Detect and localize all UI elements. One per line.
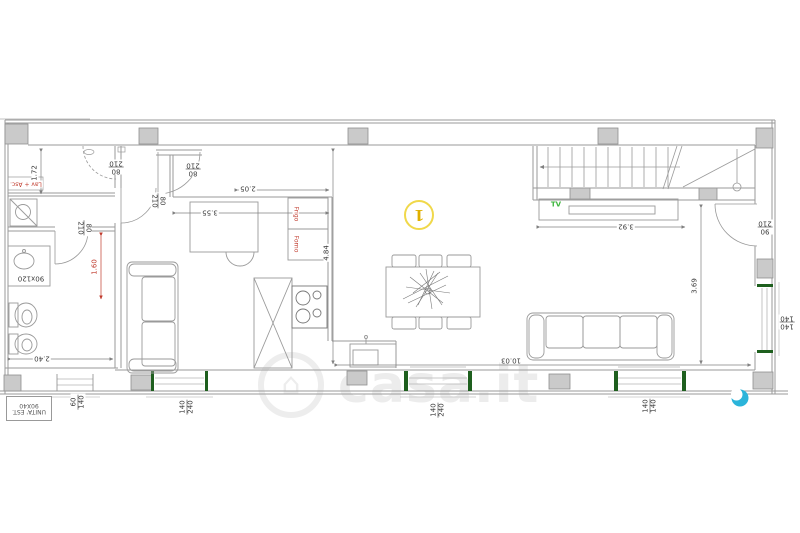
level-badge: 1 bbox=[404, 200, 434, 230]
bidet-tank bbox=[9, 303, 18, 327]
sink-unit bbox=[350, 336, 396, 368]
chair bbox=[226, 252, 254, 266]
kitchen-units bbox=[190, 198, 396, 368]
hall-door-1-size: 80210 bbox=[107, 160, 124, 175]
tv-label: TV bbox=[550, 202, 562, 209]
wc-tank bbox=[9, 334, 18, 354]
washbasin bbox=[14, 253, 34, 269]
dim-bath-detail: 1.60 bbox=[92, 258, 99, 276]
floor-plan: ⌂ casa.it bbox=[0, 0, 800, 533]
dim-bath-width: 2.40 bbox=[33, 355, 51, 362]
interior-walls bbox=[8, 146, 755, 368]
plant bbox=[403, 269, 450, 309]
kitchen-door-size: 80210 bbox=[151, 192, 166, 209]
entry-door-arc bbox=[715, 204, 757, 246]
brand-blue-dot bbox=[731, 389, 749, 407]
exterior-sill-lines bbox=[50, 282, 779, 397]
window-left-size: 140240 bbox=[180, 398, 195, 415]
dim-hall-depth: 4.84 bbox=[324, 244, 331, 262]
entry-door-size: 90210 bbox=[756, 220, 773, 235]
dim-kitchen-opening: 2.05 bbox=[239, 185, 257, 192]
oven-label: Forno bbox=[293, 235, 300, 254]
dimension-lines bbox=[11, 152, 751, 365]
bath-door-size: 80210 bbox=[77, 219, 92, 236]
laundry-label: Lav + Asc. bbox=[9, 181, 43, 188]
hall-door-2-size: 80210 bbox=[184, 162, 201, 177]
window-sills-green bbox=[151, 284, 773, 391]
vanity-size-label: 90x120 bbox=[17, 275, 45, 282]
dim-living-depth: 3.69 bbox=[692, 277, 699, 295]
fridge-label: Frigo bbox=[293, 206, 300, 223]
bath-window-size: 60140 bbox=[71, 393, 86, 410]
cooktop bbox=[292, 286, 327, 328]
plan-linework bbox=[0, 0, 800, 533]
window-center-size: 140240 bbox=[431, 401, 446, 418]
dim-stair-width: 3.92 bbox=[617, 223, 635, 230]
armchair bbox=[127, 262, 178, 373]
bathroom-fixtures bbox=[8, 177, 50, 354]
window-right-size: 140140 bbox=[643, 397, 658, 414]
dim-kitchen-width: 3.55 bbox=[201, 209, 219, 216]
furniture bbox=[127, 199, 678, 373]
kitchen-table bbox=[190, 202, 258, 252]
windows-glazing bbox=[57, 288, 767, 391]
dim-laundry-depth: 1.72 bbox=[32, 164, 39, 182]
sofa bbox=[527, 313, 674, 360]
side-window-size: 140140 bbox=[778, 315, 795, 330]
exterior-unit-box: UNITA' EST. 90X40 bbox=[6, 396, 52, 421]
staircase bbox=[540, 146, 755, 191]
dim-living-width: 10.03 bbox=[500, 357, 522, 364]
